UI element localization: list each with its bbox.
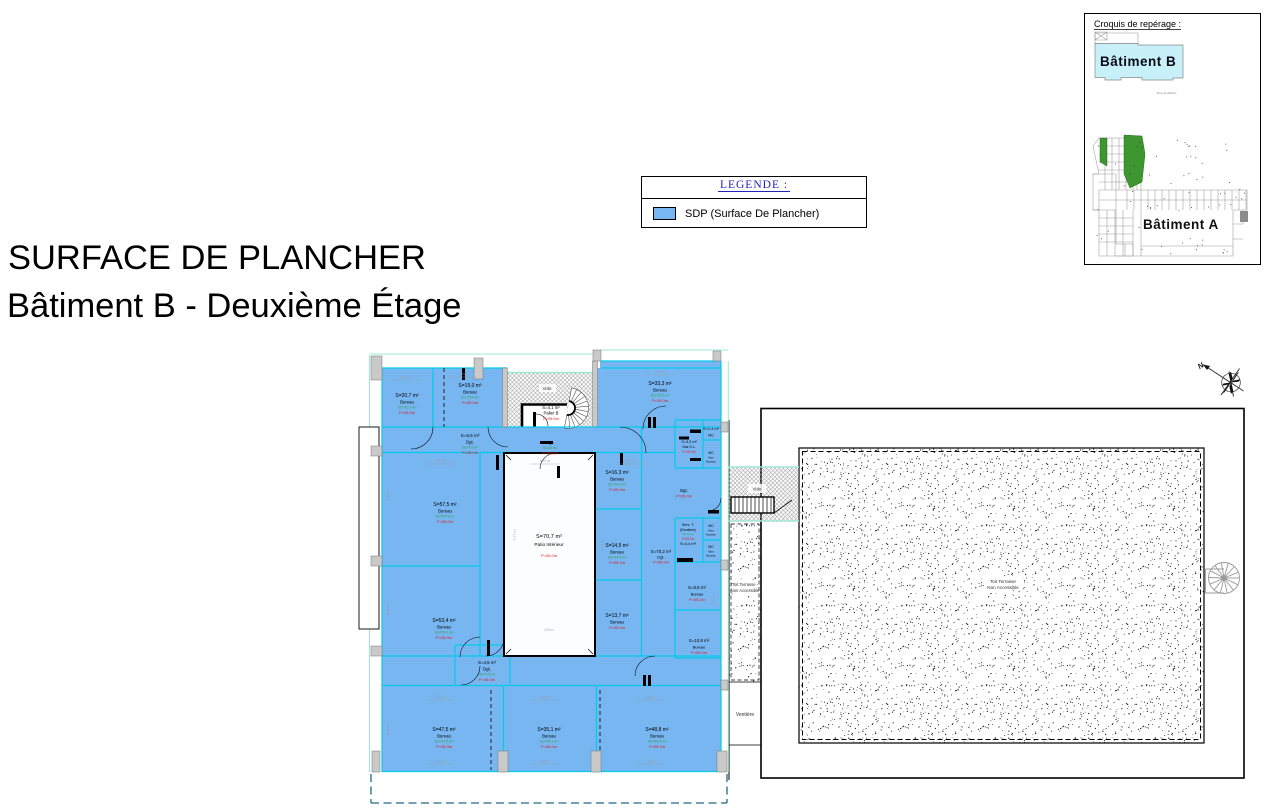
- svg-text:S=70,7 m²: S=70,7 m²: [536, 534, 562, 540]
- svg-text:5.11 m: 5.11 m: [400, 375, 410, 379]
- svg-text:P=05.0m: P=05.0m: [399, 410, 416, 415]
- svg-text:S=33,3 m²: S=33,3 m²: [648, 381, 672, 387]
- svg-text:S=10,8 m²: S=10,8 m²: [689, 638, 710, 643]
- svg-text:P=05.0m: P=05.0m: [541, 744, 558, 749]
- svg-text:Non Accessible: Non Accessible: [731, 588, 760, 593]
- svg-text:Access.: Access.: [706, 460, 717, 464]
- svg-text:Non Accessible: Non Accessible: [987, 585, 1019, 590]
- svg-text:S=3,2 m²: S=3,2 m²: [681, 440, 697, 444]
- svg-text:P=05.0m: P=05.0m: [462, 450, 479, 455]
- svg-text:Bureau: Bureau: [400, 399, 414, 404]
- svg-text:4.57 m: 4.57 m: [540, 459, 551, 463]
- svg-text:P=05.0m: P=05.0m: [609, 625, 626, 630]
- svg-text:P=05.0m: P=05.0m: [653, 560, 670, 565]
- svg-text:Serv. T.: Serv. T.: [682, 523, 694, 527]
- svg-text:P=05.0m: P=05.0m: [436, 744, 453, 749]
- svg-text:Vide: Vide: [752, 487, 762, 492]
- svg-text:Bureau: Bureau: [542, 733, 556, 738]
- svg-text:Access.: Access.: [706, 554, 717, 558]
- svg-text:S=20,7 m²: S=20,7 m²: [395, 393, 419, 399]
- svg-text:Bureau: Bureau: [437, 624, 451, 629]
- svg-text:7.60 m: 7.60 m: [645, 695, 656, 699]
- svg-text:S=4,5 m²: S=4,5 m²: [478, 660, 496, 665]
- svg-text:2.97 m: 2.97 m: [625, 459, 636, 463]
- svg-text:SU=5 m²: SU=5 m²: [543, 446, 558, 450]
- svg-text:7.56 m: 7.56 m: [645, 759, 656, 763]
- svg-text:Palier B: Palier B: [543, 411, 558, 416]
- svg-text:7.77 m: 7.77 m: [513, 530, 517, 541]
- svg-text:P=05.0m: P=05.0m: [649, 744, 666, 749]
- svg-text:S=4,1 m²: S=4,1 m²: [542, 405, 560, 410]
- svg-text:Ventière: Ventière: [736, 712, 755, 718]
- svg-text:P=05.0m: P=05.0m: [479, 677, 496, 682]
- svg-text:SU=57.5 m²: SU=57.5 m²: [436, 515, 456, 519]
- svg-text:P=05.0m: P=05.0m: [462, 400, 479, 405]
- svg-text:S=9,8 m²: S=9,8 m²: [688, 585, 706, 590]
- svg-text:S=70,2 m²: S=70,2 m²: [651, 549, 672, 554]
- svg-text:SU=14.5 m²: SU=14.5 m²: [608, 556, 628, 560]
- svg-text:6.93 m: 6.93 m: [386, 490, 390, 501]
- svg-text:Toit Terrasse: Toit Terrasse: [990, 579, 1016, 584]
- svg-text:Croquis de repérage :: Croquis de repérage :: [1094, 19, 1181, 29]
- svg-text:SU=4.5 m²: SU=4.5 m²: [479, 673, 497, 677]
- svg-text:SU=16.3 m²: SU=16.3 m²: [608, 483, 628, 487]
- svg-text:Bureau: Bureau: [463, 389, 477, 394]
- svg-text:WC: WC: [708, 524, 714, 528]
- svg-text:Dgt.: Dgt.: [680, 488, 688, 493]
- svg-text:S=57,5 m²: S=57,5 m²: [433, 502, 457, 508]
- svg-text:Sas S.L.: Sas S.L.: [682, 445, 696, 449]
- svg-text:SU=1 m²: SU=1 m²: [682, 532, 694, 536]
- svg-text:7.14 m: 7.14 m: [435, 759, 446, 763]
- svg-text:7.18 m: 7.18 m: [435, 695, 446, 699]
- svg-text:Bureau: Bureau: [438, 508, 452, 513]
- svg-text:S=48,8 m²: S=48,8 m²: [645, 727, 669, 733]
- svg-text:WC: WC: [708, 451, 714, 455]
- svg-text:SU=9.5 m²: SU=9.5 m²: [462, 446, 480, 450]
- svg-text:S=53,4 m²: S=53,4 m²: [432, 618, 456, 624]
- svg-text:Bâtiment A: Bâtiment A: [1143, 217, 1219, 232]
- svg-text:Bureau: Bureau: [610, 549, 624, 554]
- svg-text:P=05.0m: P=05.0m: [609, 487, 626, 492]
- svg-text:7.18 m: 7.18 m: [435, 459, 446, 463]
- svg-text:Patio Intérieur: Patio Intérieur: [534, 542, 564, 547]
- svg-text:Dgt.: Dgt.: [483, 666, 491, 671]
- svg-text:WC: WC: [708, 433, 714, 437]
- svg-text:5.74 m: 5.74 m: [386, 725, 390, 736]
- svg-text:Dgt.: Dgt.: [466, 439, 474, 444]
- svg-text:P=05.0m: P=05.0m: [691, 650, 708, 655]
- svg-text:S=16,3 m²: S=16,3 m²: [605, 470, 629, 476]
- svg-text:Bureau: Bureau: [693, 644, 706, 649]
- svg-text:P=05.0m: P=05.0m: [436, 635, 453, 640]
- svg-text:P=00.0m: P=00.0m: [541, 553, 558, 558]
- svg-text:P=05.0m: P=05.0m: [689, 597, 706, 602]
- svg-text:S=35,1 m²: S=35,1 m²: [537, 727, 561, 733]
- svg-text:2.97 m: 2.97 m: [712, 595, 716, 606]
- svg-text:S=14,5 m²: S=14,5 m²: [605, 543, 629, 549]
- svg-text:SU=33.3 m²: SU=33.3 m²: [651, 394, 671, 398]
- svg-text:S=4,4 m²: S=4,4 m²: [680, 541, 697, 546]
- svg-text:P=05.0m: P=05.0m: [609, 560, 626, 565]
- svg-text:Vide: Vide: [542, 386, 552, 391]
- svg-text:SU=35.1 m²: SU=35.1 m²: [540, 740, 560, 744]
- svg-text:Bureau: Bureau: [437, 733, 451, 738]
- svg-text:5.80 m: 5.80 m: [386, 605, 390, 616]
- svg-text:Access.: Access.: [706, 533, 717, 537]
- svg-text:S=19,0 m²: S=19,0 m²: [458, 383, 482, 389]
- svg-text:3.35 m: 3.35 m: [457, 372, 468, 376]
- svg-text:(Escaliers): (Escaliers): [680, 528, 696, 532]
- svg-text:Bureau: Bureau: [610, 619, 624, 624]
- svg-text:Bâtiment B: Bâtiment B: [1100, 54, 1176, 69]
- svg-text:SU=19.0 m²: SU=19.0 m²: [461, 396, 481, 400]
- svg-text:WC: WC: [708, 545, 714, 549]
- svg-text:SU=53.4 m²: SU=53.4 m²: [435, 631, 455, 635]
- svg-text:Bureau: Bureau: [691, 591, 704, 596]
- svg-text:5.46 m: 5.46 m: [540, 695, 551, 699]
- svg-text:S=13,7 m²: S=13,7 m²: [605, 613, 629, 619]
- svg-text:9.5 m: 9.5 m: [545, 628, 554, 632]
- svg-text:P=05.0m: P=05.0m: [682, 450, 696, 454]
- svg-text:P=05.0m: P=05.0m: [437, 519, 454, 524]
- svg-text:P=05.0m: P=05.0m: [652, 398, 669, 403]
- svg-text:Rue de Balzac: Rue de Balzac: [1157, 91, 1177, 95]
- svg-text:SU=48.8 m²: SU=48.8 m²: [648, 740, 668, 744]
- svg-text:S=1,4 m²: S=1,4 m²: [703, 426, 720, 431]
- svg-text:Dgt.: Dgt.: [546, 440, 554, 445]
- svg-text:P=05.0m: P=05.0m: [543, 416, 559, 421]
- svg-text:7.44 m: 7.44 m: [655, 370, 666, 374]
- svg-text:Bureau: Bureau: [610, 476, 624, 481]
- svg-text:S=47,5 m²: S=47,5 m²: [432, 727, 456, 733]
- svg-text:5.06 m: 5.06 m: [601, 540, 605, 551]
- svg-text:P=05.0m: P=05.0m: [676, 493, 693, 498]
- svg-text:Toit Terrasse -: Toit Terrasse -: [732, 582, 759, 587]
- svg-text:S=9,5 m²: S=9,5 m²: [461, 433, 480, 438]
- svg-text:P=05.0m: P=05.0m: [542, 451, 559, 456]
- svg-text:SU=47.5 m²: SU=47.5 m²: [435, 740, 455, 744]
- svg-text:Bureau: Bureau: [653, 387, 667, 392]
- svg-text:5.42 m: 5.42 m: [540, 759, 551, 763]
- svg-text:SU=20.7 m²: SU=20.7 m²: [398, 406, 418, 410]
- svg-text:Bureau: Bureau: [650, 733, 664, 738]
